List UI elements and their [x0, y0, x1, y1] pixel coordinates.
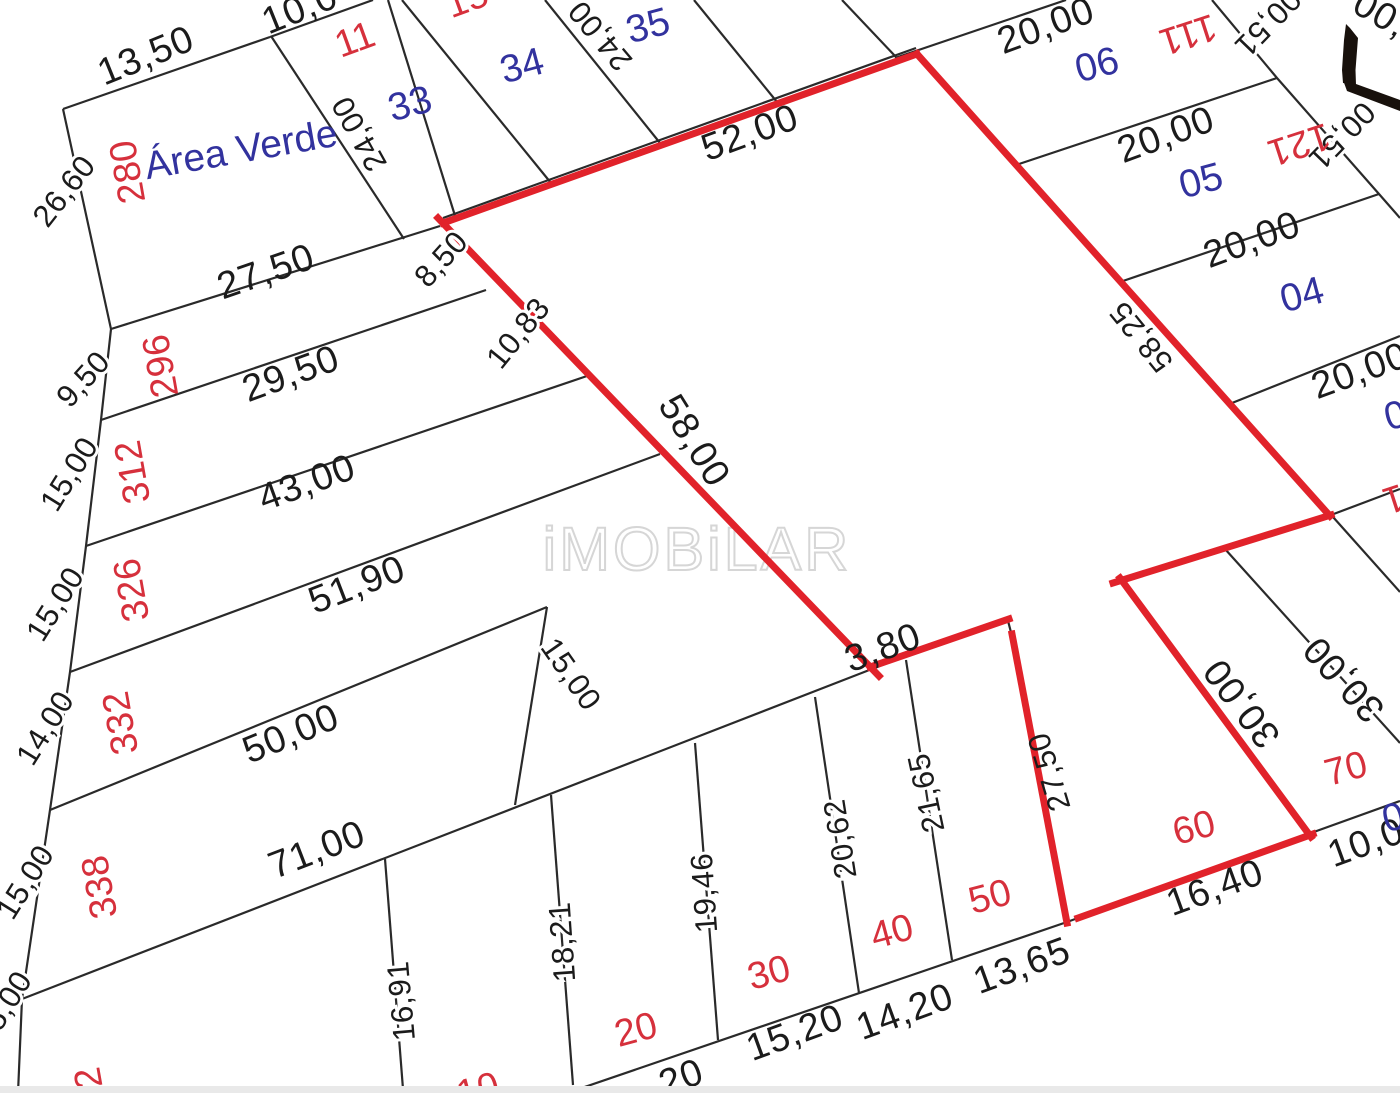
svg-text:18,21: 18,21: [542, 901, 583, 983]
svg-text:19,46: 19,46: [684, 852, 725, 934]
svg-text:iMOBiLAR: iMOBiLAR: [543, 515, 852, 583]
svg-text:16,91: 16,91: [380, 960, 422, 1043]
